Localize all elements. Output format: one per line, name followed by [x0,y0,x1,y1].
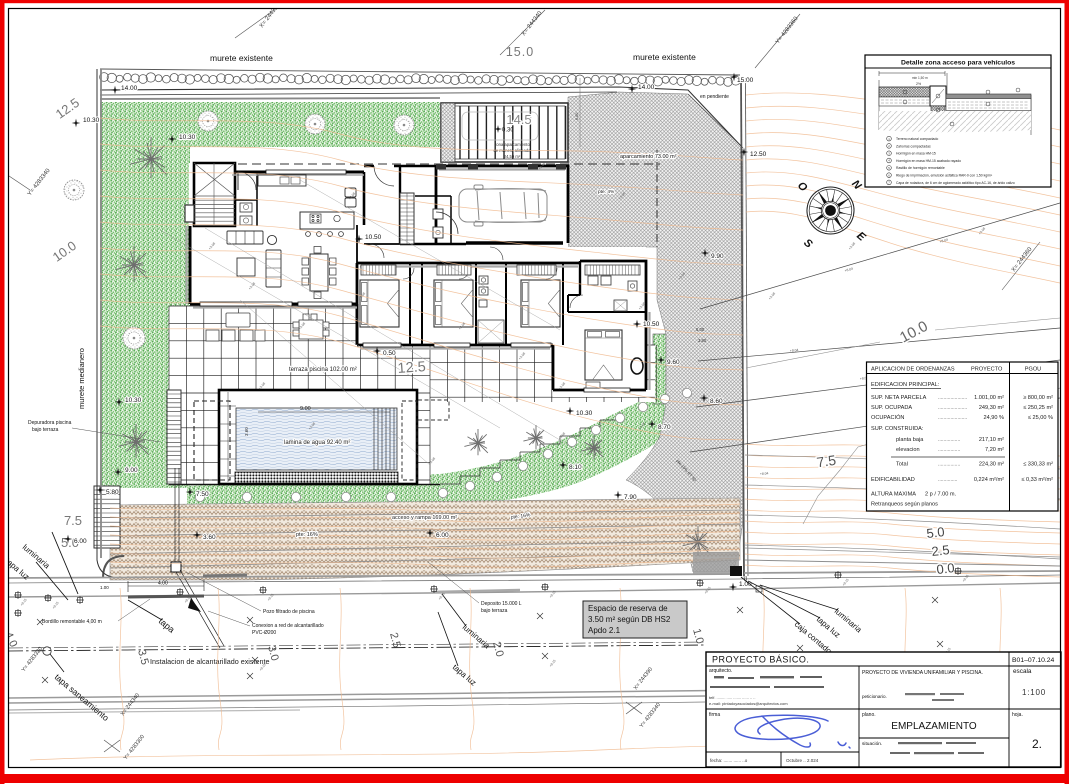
svg-text:firma: firma [709,712,720,718]
svg-text:zona aparcamiento: zona aparcamiento [494,142,530,147]
svg-text:2.5: 2.5 [931,542,951,559]
svg-text:24,50 m²: 24,50 m² [504,154,521,159]
svg-text:elevacion: elevacion [896,447,920,453]
svg-text:249,30 m²: 249,30 m² [979,405,1004,411]
svg-text:SUP. CONSTRUIDA:: SUP. CONSTRUIDA: [871,426,924,432]
svg-text:bajo terraza: bajo terraza [481,608,508,614]
svg-text:Hormigón en masa HM-15: Hormigón en masa HM-15 [896,152,936,156]
svg-text:7.50: 7.50 [196,491,209,498]
svg-text:1.00: 1.00 [100,585,109,590]
svg-text:................: ................ [938,462,960,468]
svg-text:PROYECTO: PROYECTO [971,367,1003,373]
svg-text:OCUPACIÓN: OCUPACIÓN [871,414,904,421]
svg-text:Octubre .. 2.024: Octubre .. 2.024 [786,758,819,763]
svg-text:≥ 800,00 m²: ≥ 800,00 m² [1023,395,1053,401]
svg-text:0,224 m²/m²: 0,224 m²/m² [974,477,1004,483]
svg-text:9.60: 9.60 [667,359,680,366]
svg-text:0.0: 0.0 [936,560,956,577]
svg-text:6.00: 6.00 [74,538,87,545]
svg-text:Terreno natural compactado: Terreno natural compactado [896,137,938,141]
svg-text:.....................: ..................... [938,395,967,401]
svg-text:EDIFICACION PRINCIPAL:: EDIFICACION PRINCIPAL: [871,382,940,388]
svg-text:12.5: 12.5 [397,359,426,377]
svg-text:8.70: 8.70 [658,424,671,431]
svg-text:217,10 m²: 217,10 m² [979,437,1004,443]
svg-text:2.: 2. [1032,737,1042,751]
svg-text:aparcamiento 73.00 m²: aparcamiento 73.00 m² [620,154,677,160]
svg-text:bajo terraza: bajo terraza [32,427,59,433]
svg-text:2 p / 7.00 m.: 2 p / 7.00 m. [925,492,957,498]
svg-text:PROYECTO DE VIVIENDA UNIFAM: PROYECTO DE VIVIENDA UNIFAMILIAR Y PISCI… [862,670,983,676]
svg-text:en pendiente: en pendiente [700,94,729,100]
svg-text:PVC-Ø200: PVC-Ø200 [252,630,276,636]
svg-text:7.5: 7.5 [64,513,82,528]
svg-text:ALTURA MAXIMA: ALTURA MAXIMA [871,492,916,498]
svg-text:15.00: 15.00 [737,77,754,84]
svg-text:terraza piscina 102.00 m²: terraza piscina 102.00 m² [289,367,357,373]
svg-text:Rastillo de hormigón remontabl: Rastillo de hormigón remontable [896,166,945,170]
svg-text:9.00: 9.00 [300,406,311,412]
svg-text:murete medianero: murete medianero [77,348,86,409]
svg-text:EDIFICABILIDAD: EDIFICABILIDAD [871,477,915,483]
svg-text:..............: .............. [938,477,957,483]
svg-text:5.00: 5.00 [696,327,705,332]
svg-text:10.50: 10.50 [643,321,660,328]
svg-text:SUP. OCUPADA: SUP. OCUPADA [871,405,912,411]
svg-text:10.30: 10.30 [576,410,593,417]
svg-text:plano.: plano. [862,712,876,718]
svg-text:1:100: 1:100 [1022,688,1046,697]
svg-text:3.60: 3.60 [203,534,216,541]
svg-text:10.30: 10.30 [179,134,196,141]
svg-text:escala: escala [1013,668,1032,675]
svg-text:telf. ........ ..... ......: telf. ........ ..... ....... ...... .. .… [709,695,755,700]
svg-text:APLICACION DE ORDENANZAS: APLICACION DE ORDENANZAS [871,367,955,373]
svg-text:15.0: 15.0 [506,45,534,59]
svg-text:4.00: 4.00 [158,581,168,587]
svg-text:Depuradora piscina: Depuradora piscina [28,420,72,426]
svg-text:1.001,00 m²: 1.001,00 m² [974,395,1004,401]
svg-text:PROYECTO BÁSICO.: PROYECTO BÁSICO. [712,655,809,665]
svg-text:Apdo 2.1: Apdo 2.1 [588,626,621,635]
svg-text:8.10: 8.10 [569,464,582,471]
svg-text:PGOU: PGOU [1025,367,1041,373]
svg-text:7.90: 7.90 [624,494,637,501]
svg-text:10.30: 10.30 [125,397,142,404]
svg-text:10.30: 10.30 [83,117,100,124]
svg-text:Pozo filtrado de piscina: Pozo filtrado de piscina [263,609,315,615]
svg-text:planta baja: planta baja [896,437,924,443]
svg-text:e-mail: pintadoyasociados@arq: e-mail: pintadoyasociados@arquitectos.co… [709,701,788,706]
svg-text:murete existente: murete existente [633,52,696,62]
svg-text:14.5: 14.5 [506,112,531,127]
svg-text:+8.04: +8.04 [760,471,769,476]
svg-text:7,20 m²: 7,20 m² [985,447,1004,453]
svg-text:Total: Total [896,462,908,468]
svg-text:8.60: 8.60 [710,398,723,405]
svg-text:12.50: 12.50 [750,151,767,158]
svg-text:EMPLAZAMIENTO: EMPLAZAMIENTO [891,721,977,732]
svg-text:Riego de imprimación, emulsión: Riego de imprimación, emulsión asfáltica… [896,174,993,178]
svg-text:0.30: 0.30 [502,128,514,134]
svg-text:.....................: ..................... [938,415,967,421]
svg-text:SUP. NETA PARCELA: SUP. NETA PARCELA [871,395,927,401]
svg-text:7.5: 7.5 [816,452,838,471]
svg-text:≤ 250,25 m²: ≤ 250,25 m² [1023,405,1053,411]
svg-text:pte: 4%: pte: 4% [598,189,615,195]
svg-text:14.00: 14.00 [121,85,138,92]
svg-text:224,30 m²: 224,30 m² [979,462,1004,468]
svg-text:Instalacion de alcantarillado: Instalacion de alcantarillado existente [150,657,269,666]
svg-text:≤ 330,33 m²: ≤ 330,33 m² [1023,462,1053,468]
svg-text:Capa de rodadura, de 6 cm de a: Capa de rodadura, de 6 cm de aglomerado … [896,181,1015,185]
svg-text:min 1,50 m: min 1,50 m [912,76,928,80]
svg-text:pte: 16%: pte: 16% [296,532,318,538]
svg-text:................: ................ [938,437,960,443]
svg-text:6.00: 6.00 [436,532,449,539]
svg-text:situación.: situación. [862,741,882,747]
svg-text:Espacio de reserva de: Espacio de reserva de [588,604,668,613]
svg-text:9.90: 9.90 [711,253,724,260]
svg-text:lamina de agua 92.40 m²: lamina de agua 92.40 m² [284,440,350,446]
svg-text:Detalle zona acceso para vehíc: Detalle zona acceso para vehículos [901,60,1015,67]
svg-text:3.60: 3.60 [244,427,249,436]
svg-text:≤ 25,00 %: ≤ 25,00 % [1028,415,1053,421]
svg-text:Bordillo remontable 4,00 m: Bordillo remontable 4,00 m [42,619,102,625]
svg-text:................: ................ [938,447,960,453]
svg-text:peticionario.: peticionario. [862,694,887,699]
svg-text:arquitecto.: arquitecto. [709,668,732,674]
svg-text:Retranqueos según planos: Retranqueos según planos [871,502,938,508]
svg-text:3.80: 3.80 [698,338,707,343]
svg-text:≤ 0,33 m²/m²: ≤ 0,33 m²/m² [1021,477,1053,483]
svg-text:hoja.: hoja. [1012,712,1023,718]
svg-text:5.0: 5.0 [926,524,946,541]
svg-text:B01–07.10.24: B01–07.10.24 [1012,657,1055,664]
svg-text:14.00: 14.00 [638,84,655,91]
svg-text:Zahorras compactadas: Zahorras compactadas [896,144,931,148]
svg-text:.....................: ..................... [938,405,967,411]
svg-text:acceso y rampa 169.00 m²: acceso y rampa 169.00 m² [392,515,457,521]
svg-text:9.00: 9.00 [125,467,138,474]
svg-text:Deposito 15.000 L: Deposito 15.000 L [481,601,522,607]
svg-text:0.50: 0.50 [383,350,396,357]
svg-text:10.50: 10.50 [365,234,382,241]
svg-text:Conexion a red de alcantarilla: Conexion a red de alcantarillado [252,623,324,629]
svg-text:3.50 m² según DB HS2: 3.50 m² según DB HS2 [588,615,671,624]
svg-text:murete existente: murete existente [210,53,273,63]
svg-text:fecha: ....... ...... ..o: fecha: ....... ...... ..o [710,758,748,763]
svg-text:5.80: 5.80 [106,489,119,496]
svg-text:24,90 %: 24,90 % [983,415,1004,421]
svg-text:6.00: 6.00 [575,113,579,120]
svg-text:2%: 2% [916,82,921,86]
svg-text:Hormigón en masa HM-15 acabado: Hormigón en masa HM-15 acabado rayado [896,159,961,163]
